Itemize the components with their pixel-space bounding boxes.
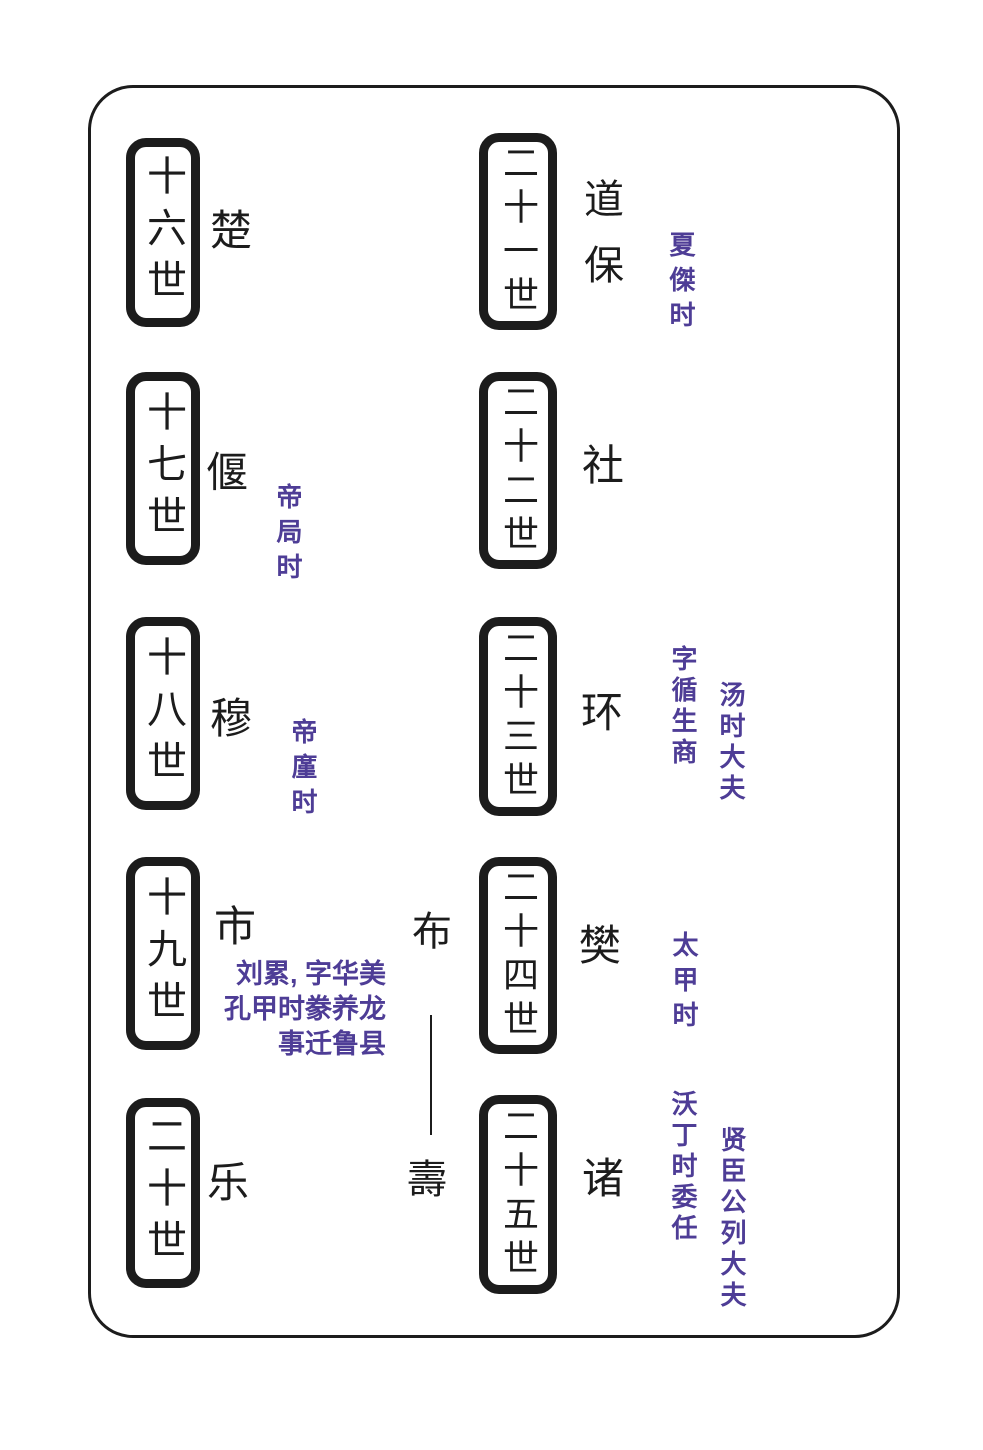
note-gen25-office: 贤臣公列大夫 bbox=[719, 1126, 745, 1312]
note-gen21-era: 夏傑时 bbox=[668, 231, 694, 336]
member-name-fan: 樊 bbox=[579, 925, 621, 967]
note-gen18-era: 帝廑时 bbox=[290, 718, 316, 823]
member-name-shou: 壽 bbox=[407, 1160, 447, 1200]
note-gen24-era: 太甲时 bbox=[671, 931, 697, 1036]
lineage-connector-line bbox=[430, 1015, 432, 1135]
member-name-mu: 穆 bbox=[210, 698, 252, 740]
note-gen19-line3: 事迁鲁县 bbox=[214, 1027, 386, 1062]
note-gen23-office: 汤时大夫 bbox=[718, 681, 744, 805]
gen-21-label: 二十一世 bbox=[500, 144, 536, 320]
gen-16-box: 十六世 bbox=[126, 138, 200, 327]
gen-22-box: 二十二世 bbox=[479, 372, 557, 569]
gen-25-label: 二十五世 bbox=[500, 1107, 536, 1283]
member-name-le: 乐 bbox=[207, 1162, 249, 1204]
gen-17-label: 十七世 bbox=[143, 391, 183, 547]
member-name-shi: 市 bbox=[214, 906, 256, 948]
gen-22-label: 二十二世 bbox=[500, 383, 536, 559]
note-gen19-line2: 孔甲时豢养龙 bbox=[214, 992, 386, 1027]
gen-18-label: 十八世 bbox=[143, 636, 183, 792]
gen-24-box: 二十四世 bbox=[479, 857, 557, 1054]
note-gen23-courtesy: 字循生商 bbox=[670, 645, 696, 769]
member-name-chu: 楚 bbox=[210, 210, 252, 252]
gen-19-label: 十九世 bbox=[143, 876, 183, 1032]
note-gen17-era: 帝局时 bbox=[275, 483, 301, 588]
gen-21-box: 二十一世 bbox=[479, 133, 557, 330]
member-name-she: 社 bbox=[582, 445, 624, 487]
gen-23-box: 二十三世 bbox=[479, 617, 557, 816]
gen-24-label: 二十四世 bbox=[500, 868, 536, 1044]
gen-19-box: 十九世 bbox=[126, 857, 200, 1050]
gen-23-label: 二十三世 bbox=[500, 629, 536, 805]
gen-18-box: 十八世 bbox=[126, 617, 200, 810]
gen-20-label: 二十世 bbox=[143, 1115, 183, 1271]
note-gen19-line1: 刘累, 字华美 bbox=[214, 957, 386, 992]
genealogy-chart: 十六世 十七世 十八世 十九世 二十世 楚 偃 穆 市 乐 帝局时 帝廑时 刘累… bbox=[0, 0, 983, 1450]
member-name-daobao: 道保 bbox=[580, 178, 620, 310]
gen-16-label: 十六世 bbox=[143, 155, 183, 311]
note-gen25-era: 沃丁时委任 bbox=[670, 1090, 696, 1245]
member-name-yan: 偃 bbox=[206, 452, 248, 494]
member-name-zhu: 诸 bbox=[582, 1158, 624, 1200]
note-gen19-biography: 刘累, 字华美 孔甲时豢养龙 事迁鲁县 bbox=[214, 957, 386, 1062]
gen-25-box: 二十五世 bbox=[479, 1095, 557, 1294]
gen-20-box: 二十世 bbox=[126, 1098, 200, 1288]
member-name-huan: 环 bbox=[581, 692, 623, 734]
member-name-bu: 布 bbox=[412, 912, 452, 952]
gen-17-box: 十七世 bbox=[126, 372, 200, 565]
